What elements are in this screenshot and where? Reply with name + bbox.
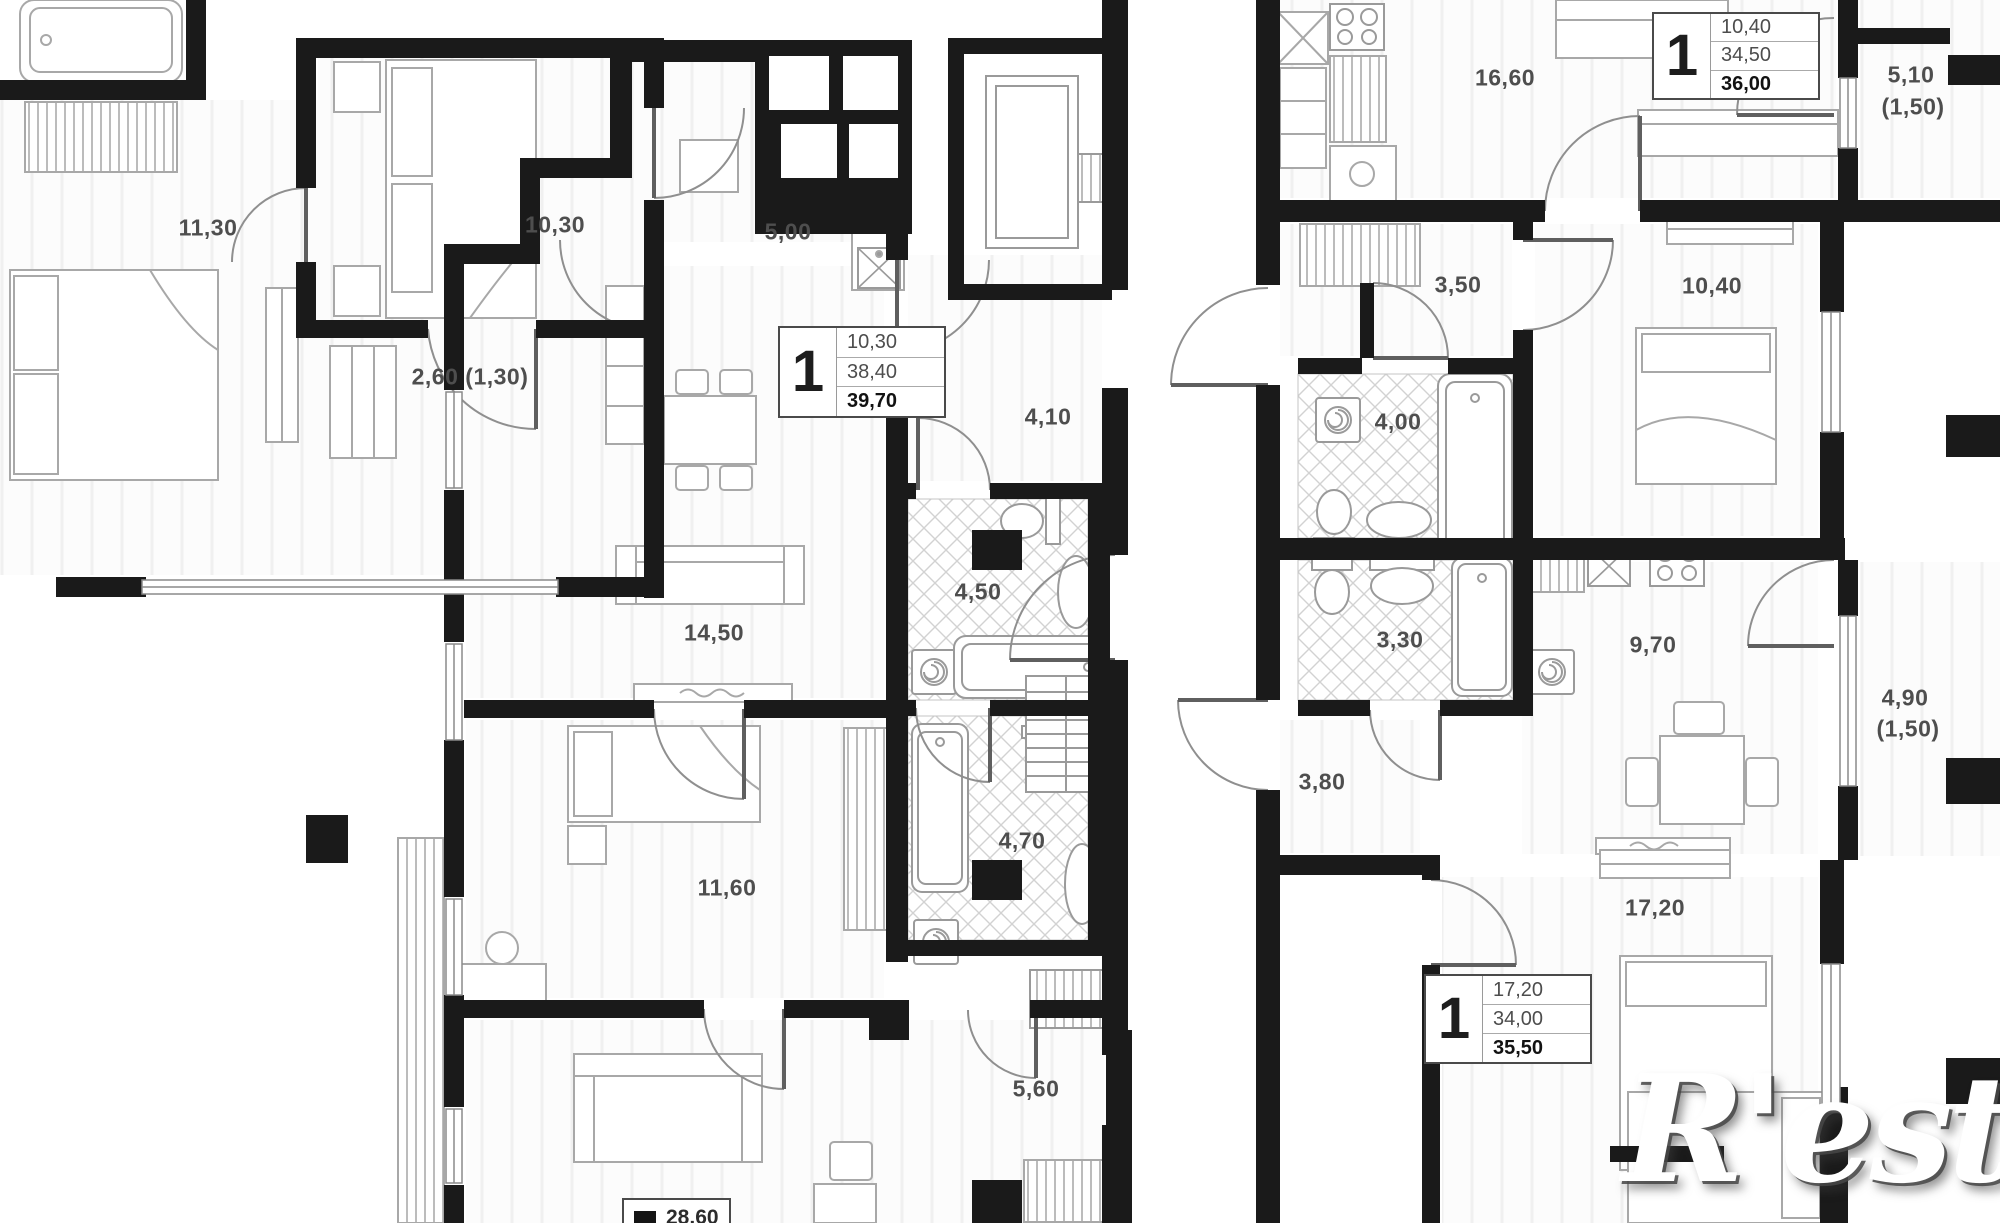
apartment-total-area: 39,70: [837, 386, 944, 416]
apartment-living-area: 17,20: [1483, 976, 1590, 1004]
apartment-area: 38,40: [837, 357, 944, 387]
nightstand: [568, 826, 606, 864]
room-label-2-60: 2,60 (1,30): [412, 364, 529, 391]
room-label-16-60: 16,60: [1475, 65, 1535, 92]
apartment-area: 34,00: [1483, 1004, 1590, 1033]
room-label-10-40: 10,40: [1682, 273, 1742, 300]
room-label-4-70: 4,70: [999, 828, 1046, 855]
bathtub: [1452, 558, 1512, 696]
radiator: [25, 102, 177, 172]
apartment-info-box: 1 10,40 34,50 36,00: [1652, 12, 1820, 100]
room-label-5-10-b: (1,50): [1881, 94, 1944, 121]
apartment-living-area: 10,30: [837, 328, 944, 357]
wardrobe: [606, 286, 644, 444]
room-label-3-30: 3,30: [1377, 627, 1424, 654]
room-label-5-60: 5,60: [1013, 1076, 1060, 1103]
room-label-3-80: 3,80: [1299, 769, 1346, 796]
apartment-info-box: 1 17,20 34,00 35,50: [1424, 974, 1592, 1064]
room-label-9-70: 9,70: [1630, 632, 1677, 659]
room-label-14-50: 14,50: [684, 620, 744, 647]
nightstand: [334, 62, 380, 112]
kitchen-cabinet: [680, 140, 738, 192]
tv-stand: [634, 684, 792, 702]
bathtub: [912, 724, 968, 892]
apartment-total-area: 35,50: [1483, 1033, 1590, 1062]
elevator: [986, 76, 1078, 248]
apartment-rooms-count: 1: [1654, 14, 1711, 98]
apartment-info-box-partial: 28,60: [622, 1198, 731, 1223]
bathtub: [20, 0, 182, 82]
room-label-4-90: 4,90: [1882, 685, 1929, 712]
room-label-11-30: 11,30: [179, 215, 238, 242]
dresser: [1600, 850, 1730, 878]
wardrobe: [1024, 1160, 1108, 1222]
radiator: [1030, 970, 1104, 1028]
room-label-4-00: 4,00: [1375, 409, 1422, 436]
apartment-info-box: 1 10,30 38,40 39,70: [778, 326, 946, 418]
room-label-4-90-b: (1,50): [1876, 716, 1939, 743]
room-label-4-10: 4,10: [1025, 404, 1072, 431]
nightstand: [334, 266, 380, 316]
room-label-5-10: 5,10: [1888, 62, 1935, 89]
sink: [1370, 558, 1434, 604]
single-bed: [568, 726, 760, 822]
double-bed: [10, 270, 218, 480]
wardrobe: [1300, 224, 1420, 286]
kitchen-cabinet: [1280, 68, 1326, 168]
room-label-17-20: 17,20: [1625, 895, 1685, 922]
floorplan-canvas: [0, 0, 2000, 1223]
chair: [830, 1142, 872, 1180]
toilet: [1312, 558, 1352, 614]
apartment-marker: [634, 1211, 656, 1223]
kitchen-counter: [1330, 56, 1386, 142]
balcony-rail: [398, 838, 444, 1223]
room-label-5-00: 5,00: [765, 219, 812, 246]
room-label-10-30: 10,30: [525, 212, 585, 239]
apartment-rooms-count: 1: [780, 328, 837, 416]
table: [814, 1184, 876, 1223]
floorplan-page: 11,30 10,30 2,60 (1,30) 5,00 4,10 4,50 1…: [0, 0, 2000, 1223]
room-label-11-60: 11,60: [698, 875, 757, 902]
room-label-4-50: 4,50: [955, 579, 1002, 606]
apartment-area: 34,50: [1711, 41, 1818, 69]
kitchen-cabinet: [1330, 146, 1396, 202]
apartment-living-area: 10,40: [1711, 14, 1818, 41]
bathtub: [1438, 374, 1512, 556]
bed: [1636, 328, 1776, 484]
apartment-total-area: 36,00: [1711, 70, 1818, 98]
watermark: R'estate: [1622, 1042, 2000, 1216]
balcony-bench: [330, 346, 396, 458]
apartment-rooms-count: 1: [1426, 976, 1483, 1062]
room-label-3-50: 3,50: [1435, 272, 1482, 299]
apartment-total-area: 28,60: [666, 1206, 719, 1223]
